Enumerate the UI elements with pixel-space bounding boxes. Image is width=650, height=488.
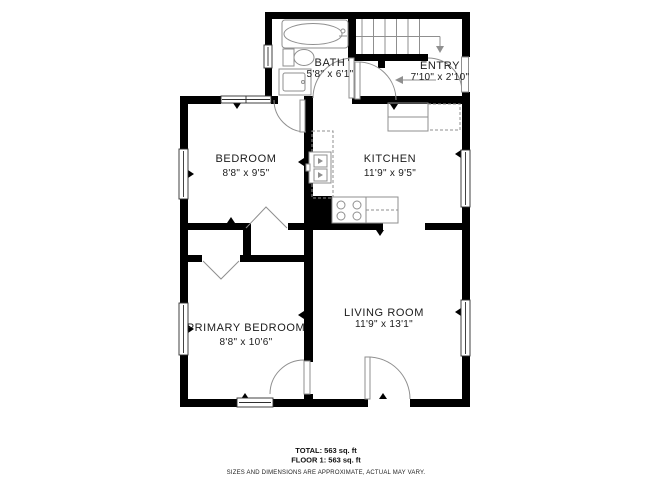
footer-disclaimer: SIZES AND DIMENSIONS ARE APPROXIMATE, AC… xyxy=(227,470,426,476)
dimension-tick xyxy=(379,393,387,399)
counter-beside-stove xyxy=(366,197,398,223)
dimension-tick xyxy=(455,308,461,316)
wall-stairs-entry-divider xyxy=(348,54,428,61)
wall-primary-top-stub xyxy=(188,255,202,262)
entry-room-label: ENTRY 7'10" x 2'10" xyxy=(411,60,470,83)
bedroom-door xyxy=(274,100,306,132)
wall-bottom-b xyxy=(273,399,368,407)
wall-left-b xyxy=(180,199,188,303)
wall-top-main-left xyxy=(180,96,221,104)
floorplan-page: BATH 5'8" x 6'1" ENTRY 7'10" x 2'10" BED… xyxy=(0,0,650,488)
living-room-room-label: LIVING ROOM 11'9" x 13'1" xyxy=(344,307,424,330)
dimension-tick xyxy=(298,158,304,166)
kitchen-room-label: KITCHEN 11'9" x 9'5" xyxy=(364,153,416,179)
floorplan-drawing: BATH 5'8" x 6'1" ENTRY 7'10" x 2'10" BED… xyxy=(0,0,650,488)
wall-bath-left-b xyxy=(265,68,272,97)
bedroom-top-window xyxy=(221,96,271,103)
footer-floor: FLOOR 1: 563 sq. ft xyxy=(291,456,361,465)
wall-kitchen-chimney-mass xyxy=(306,196,332,230)
stairs-down-arrow xyxy=(436,37,444,54)
wall-bedroom-bottom-a xyxy=(188,223,245,230)
primary-bedroom-dims: 8'8" x 10'6" xyxy=(220,337,273,348)
bedroom-room-label: BEDROOM 8'8" x 9'5" xyxy=(215,153,276,179)
wall-primary-top xyxy=(240,255,304,262)
living-room-dims: 11'9" x 13'1" xyxy=(355,319,413,330)
wall-primary-living-divider-low xyxy=(304,394,313,402)
kitchen-dims: 11'9" x 9'5" xyxy=(364,168,416,179)
stove xyxy=(332,197,366,223)
wall-bottom-c xyxy=(410,399,470,407)
living-room-right-window xyxy=(461,300,470,356)
primary-bedroom-door xyxy=(270,360,310,394)
kitchen-sink xyxy=(306,152,331,183)
bedroom-label: BEDROOM xyxy=(215,153,276,165)
wall-right-a xyxy=(462,19,470,57)
primary-bottom-window xyxy=(237,398,273,407)
bath-dims: 5'8" x 6'1" xyxy=(306,69,353,80)
toilet xyxy=(283,49,314,66)
bath-room-label: BATH 5'8" x 6'1" xyxy=(306,57,353,80)
dimension-tick xyxy=(227,217,235,223)
dimension-tick xyxy=(298,311,304,319)
staircase xyxy=(356,19,444,54)
bath-left-window xyxy=(264,45,272,68)
dimension-tick xyxy=(390,104,398,110)
wall-bedroom-bottom-b xyxy=(288,223,304,230)
primary-closet-door-chevron xyxy=(203,261,239,279)
refrigerator xyxy=(388,103,460,131)
dimension-tick xyxy=(233,103,241,109)
bedroom-left-window xyxy=(179,149,188,199)
dimension-tick xyxy=(376,230,384,236)
living-room-door xyxy=(365,357,410,399)
bath-label: BATH xyxy=(315,57,346,69)
footer: TOTAL: 563 sq. ft FLOOR 1: 563 sq. ft SI… xyxy=(227,446,426,476)
wall-right-b xyxy=(462,92,470,150)
dimension-tick xyxy=(455,150,461,158)
wall-right-c xyxy=(462,207,470,300)
entry-hall-door xyxy=(355,62,396,100)
entry-label: ENTRY xyxy=(420,60,460,72)
wall-kitchen-bottom-b xyxy=(425,223,462,230)
wall-entry-stub xyxy=(378,54,385,68)
living-room-label: LIVING ROOM xyxy=(344,307,424,319)
bedroom-dims: 8'8" x 9'5" xyxy=(222,168,269,179)
bedroom-closet-door-chevron xyxy=(246,207,287,228)
wall-left-a xyxy=(180,104,188,149)
bathtub xyxy=(282,20,348,48)
kitchen-label: KITCHEN xyxy=(364,153,416,165)
wall-bottom-a xyxy=(180,399,237,407)
dimension-tick xyxy=(188,170,194,178)
wall-bath-left-a xyxy=(265,19,272,45)
primary-bedroom-room-label: PRIMARY BEDROOM 8'8" x 10'6" xyxy=(187,322,306,348)
kitchen-right-window xyxy=(461,150,470,207)
entry-dims: 7'10" x 2'10" xyxy=(411,72,470,83)
primary-bedroom-label: PRIMARY BEDROOM xyxy=(187,322,306,334)
wall-primary-living-divider xyxy=(304,230,313,362)
wall-top-extension xyxy=(265,12,470,19)
footer-total: TOTAL: 563 sq. ft xyxy=(295,446,357,455)
